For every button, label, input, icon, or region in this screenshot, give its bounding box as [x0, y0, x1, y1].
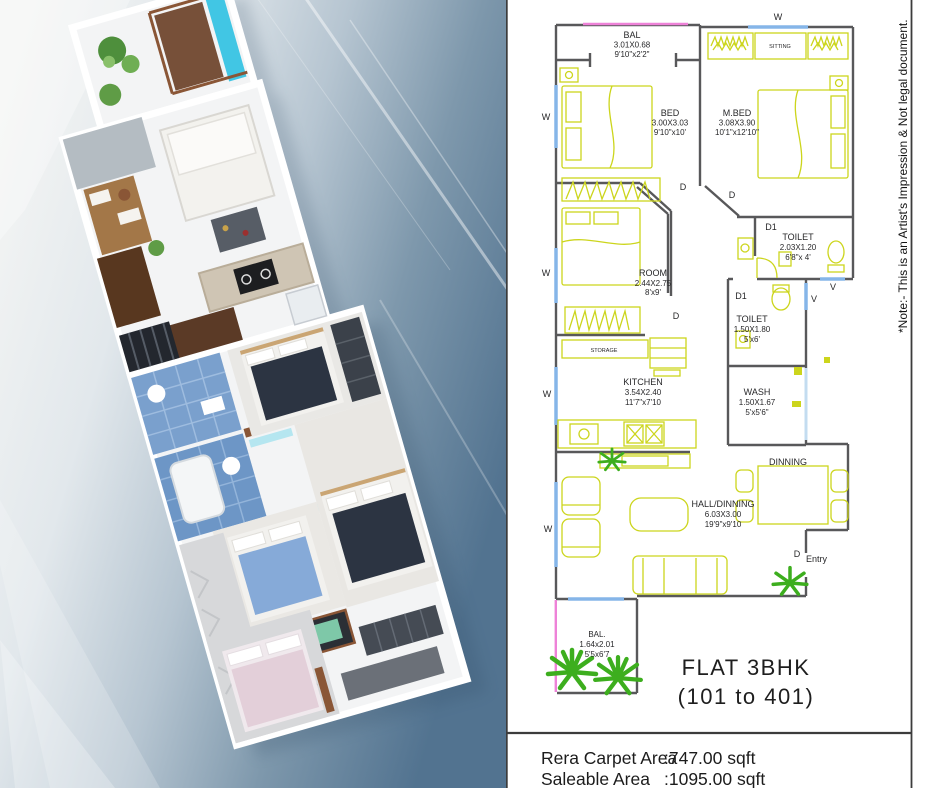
window-marker: W	[543, 389, 552, 399]
window-marker: W	[542, 112, 551, 122]
room-dim: 2.44X2.75	[635, 279, 672, 288]
dinning-label: DINNING	[769, 457, 807, 467]
room-dim: 2.03X1.20	[780, 243, 817, 252]
room-furniture	[562, 208, 640, 285]
storage-unit	[562, 338, 686, 376]
room-dim: 10'1"x12'10"	[715, 128, 759, 137]
room-labels: BAL 3.01X0.68 9'10"x2'2" BED 3.00X3.03 9…	[579, 30, 816, 659]
door-marker: D1	[765, 222, 777, 232]
real-estate-flyer: BAL 3.01X0.68 9'10"x2'2" BED 3.00X3.03 9…	[0, 0, 940, 788]
room-dim: 5'x5'6"	[745, 408, 768, 417]
room-dim: 19'9"x9'10	[705, 520, 742, 529]
room-label: BED	[661, 108, 680, 118]
saleable-area-label: Saleable Area	[541, 769, 650, 788]
room-dim: 3.01X0.68	[614, 41, 651, 50]
flat-title-line1: FLAT 3BHK	[682, 655, 811, 680]
room-dim: 6'8"x 4'	[785, 253, 811, 262]
wash-fixtures	[792, 357, 830, 407]
disclaimer-note: *Note:- This is an Artist's Impression &…	[896, 19, 910, 333]
room-dim: 1.50X1.67	[739, 398, 776, 407]
door-marker: D	[673, 311, 680, 321]
kitchen-counter	[558, 420, 696, 448]
vent-marker: V	[830, 282, 836, 292]
room-label: TOILET	[736, 314, 768, 324]
room-label: KITCHEN	[623, 377, 663, 387]
room-label: BAL	[623, 30, 640, 40]
entry-label: Entry	[806, 554, 828, 564]
flat-title-line2: (101 to 401)	[678, 684, 815, 709]
room-dim: 9'10"x10'	[654, 128, 687, 137]
room-label: ROOM	[639, 268, 667, 278]
door-marker: D	[729, 190, 736, 200]
room-label: WASH	[744, 387, 771, 397]
room-dim: 6.03X3.00	[705, 510, 742, 519]
bed-furniture	[560, 68, 652, 168]
window-marker: W	[542, 268, 551, 278]
hall-armchairs	[562, 477, 600, 557]
door-marker: D1	[735, 291, 747, 301]
render-scene	[0, 0, 506, 788]
room-dim: 9'10"x2'2"	[615, 50, 650, 59]
room-dim: 5'x6'	[744, 335, 760, 344]
room-dim: 8'x9'	[645, 288, 661, 297]
room-dim: 3.54X2.40	[625, 388, 662, 397]
flat-title: FLAT 3BHK (101 to 401)	[678, 655, 815, 709]
sofa-plan	[633, 556, 727, 594]
dining-set	[736, 466, 848, 524]
storage-label: STORAGE	[591, 348, 618, 354]
room-label: HALL/DINNING	[691, 499, 754, 509]
wardrobe-hatch-2	[565, 307, 640, 333]
door-marker: D	[680, 182, 687, 192]
mbed-furniture	[758, 76, 848, 178]
entry-plant	[773, 568, 807, 595]
floor-plan: BAL 3.01X0.68 9'10"x2'2" BED 3.00X3.03 9…	[506, 0, 940, 788]
door-marker: D	[794, 549, 801, 559]
room-label: M.BED	[723, 108, 752, 118]
sitting-label: SITTING	[769, 44, 791, 50]
rera-area-label: Rera Carpet Area	[541, 748, 677, 768]
floor-plan-panel: BAL 3.01X0.68 9'10"x2'2" BED 3.00X3.03 9…	[506, 0, 940, 788]
vent-marker: V	[811, 294, 817, 304]
plan-furniture	[558, 33, 848, 594]
room-dim: 11'7"x7'10	[625, 398, 662, 407]
room-dim: 3.08X3.90	[719, 119, 756, 128]
coffee-table-plan	[630, 498, 688, 531]
room-label: BAL.	[588, 630, 605, 639]
saleable-area-value: :1095.00 sqft	[664, 769, 765, 788]
artist-impression-render	[0, 0, 506, 788]
plan-walls	[556, 25, 853, 693]
room-dim: 1.64x2.01	[579, 640, 615, 649]
room-dim: 5'5x6'7	[585, 650, 610, 659]
rera-area-value: :747.00 sqft	[664, 748, 756, 768]
palm-plant	[595, 657, 641, 693]
window-marker: W	[544, 524, 553, 534]
area-footer: Rera Carpet Area :747.00 sqft Saleable A…	[541, 748, 765, 788]
room-dim: 3.00X3.03	[652, 119, 689, 128]
wardrobe-hatch-1	[562, 178, 660, 201]
room-label: TOILET	[782, 232, 814, 242]
opening-markers: W W W W W V V D D D D D1 D1 Entry	[542, 12, 836, 564]
window-marker: W	[774, 12, 783, 22]
room-dim: 1.50X1.80	[734, 325, 771, 334]
